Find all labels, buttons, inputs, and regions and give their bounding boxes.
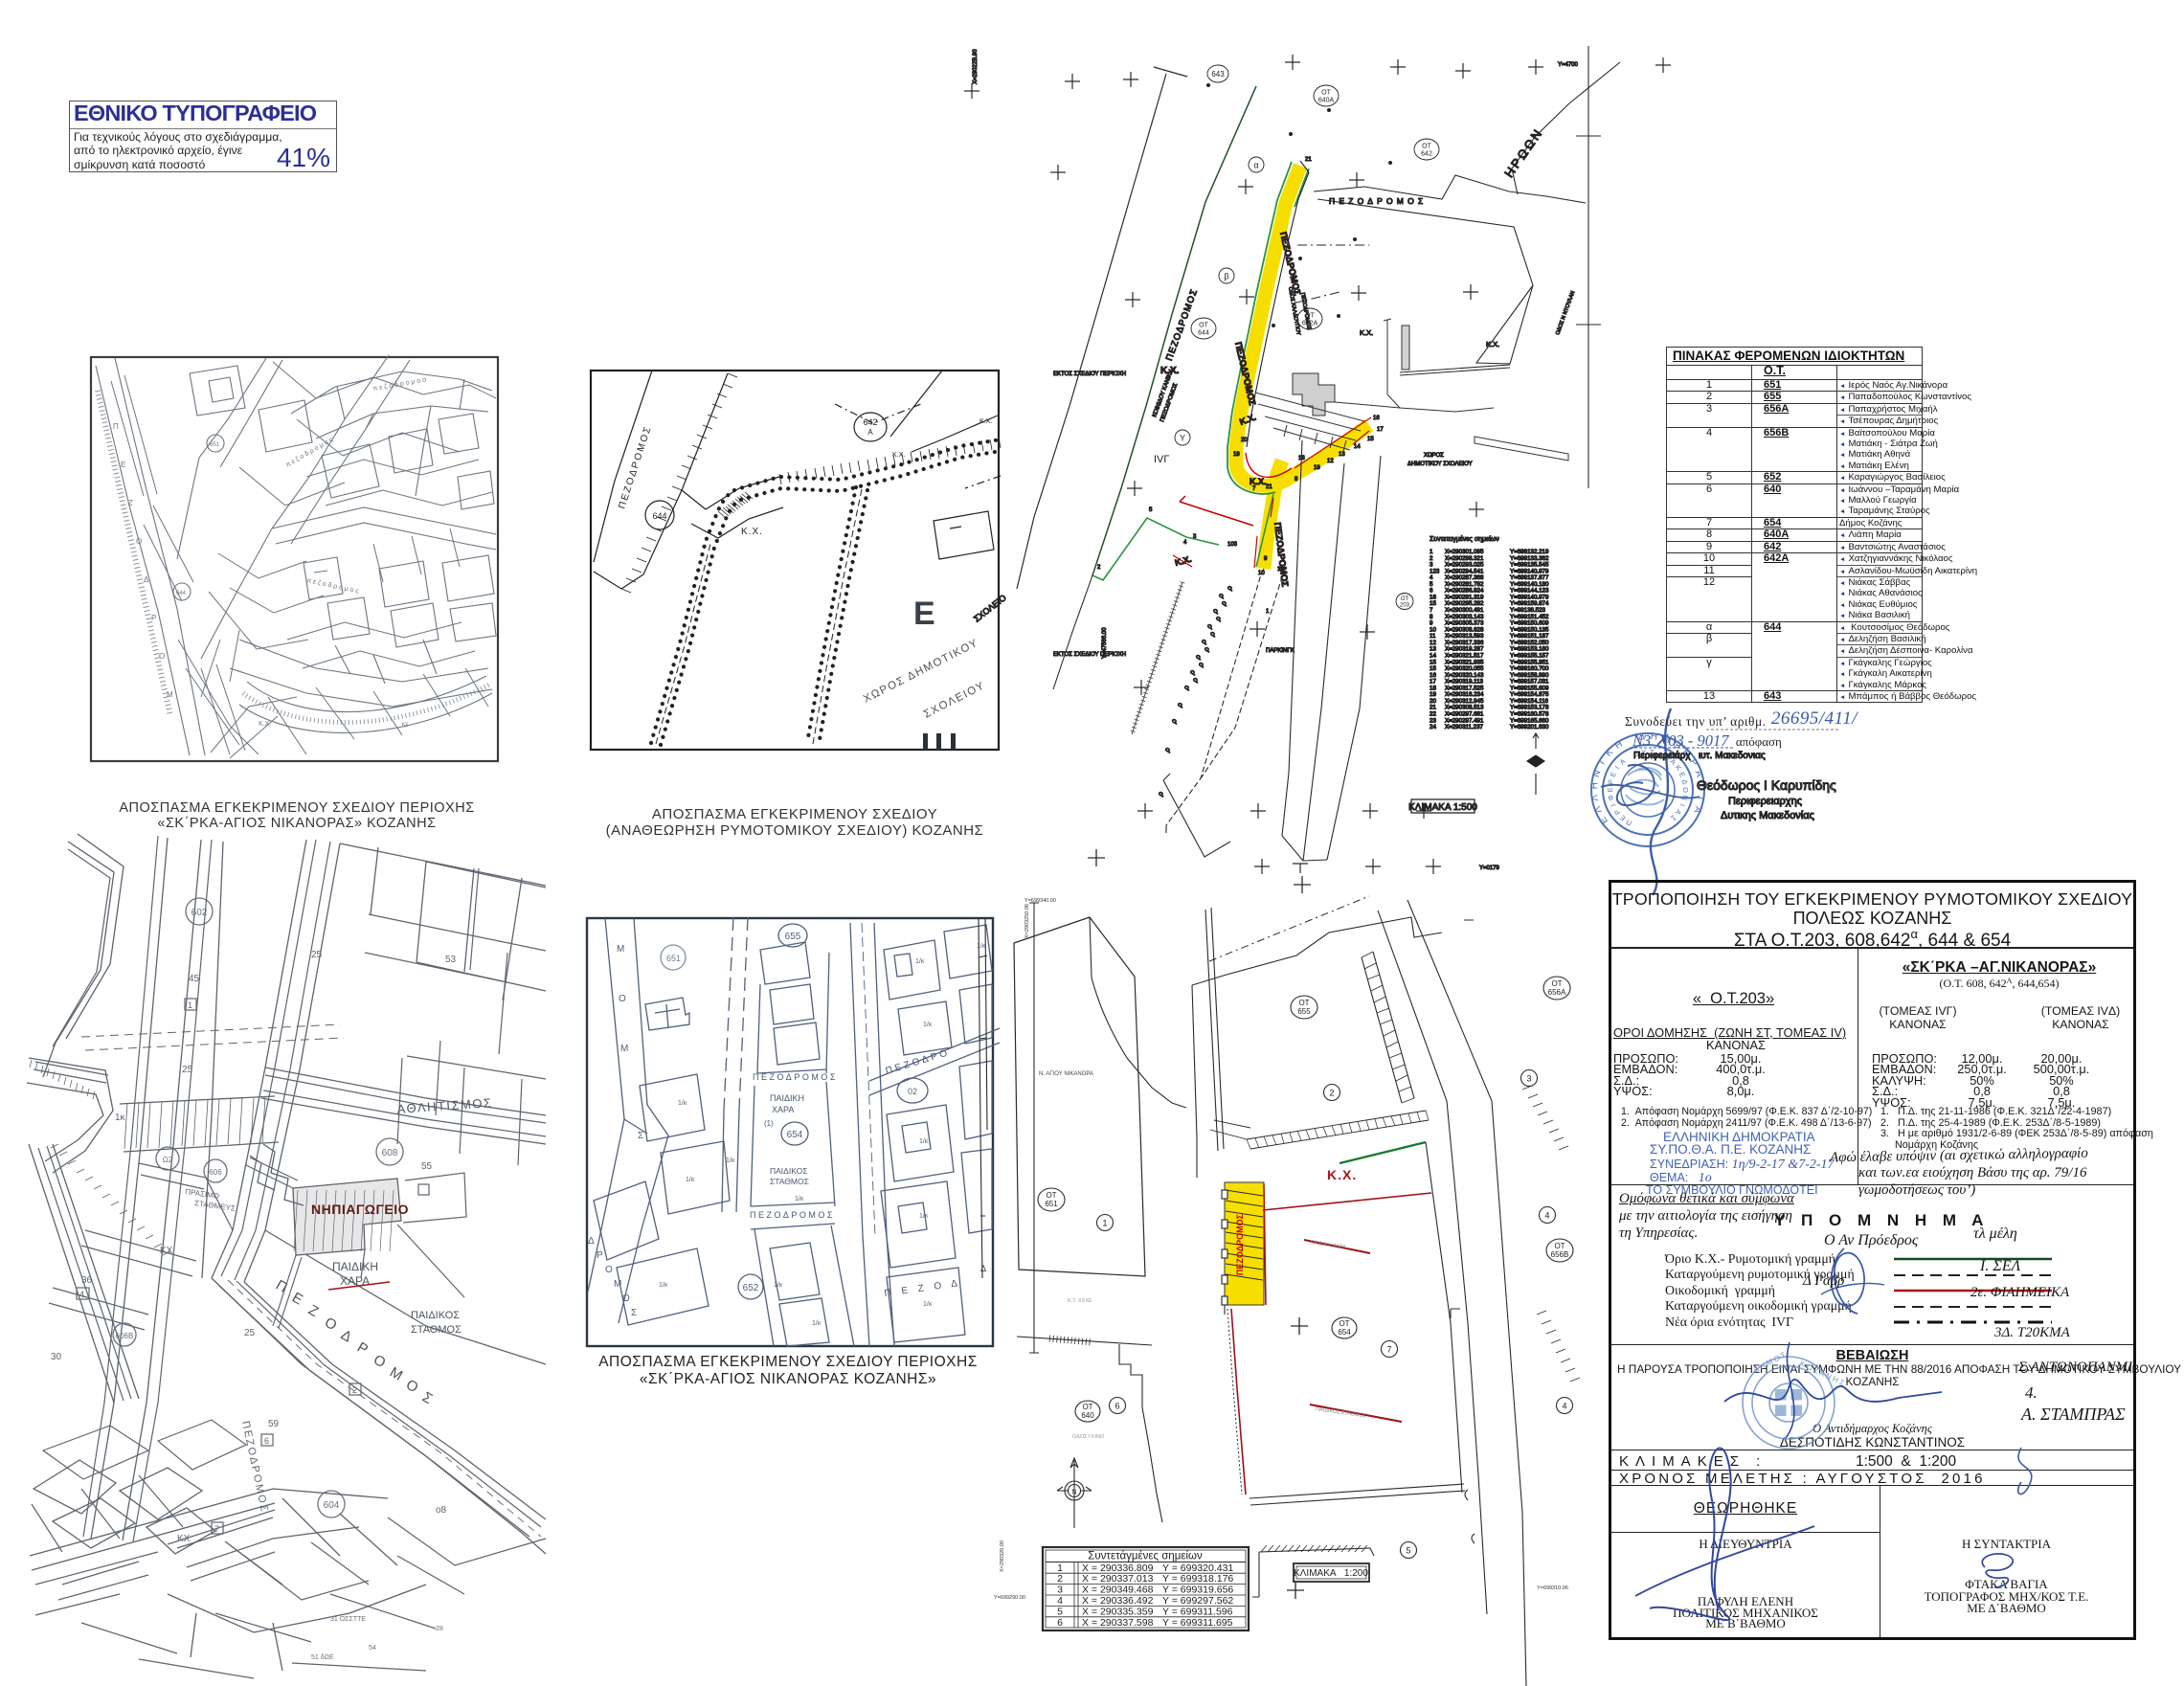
svg-text:Y = 699297.562: Y = 699297.562 — [1162, 1595, 1233, 1607]
svg-text:ρ: ρ — [1199, 638, 1208, 645]
svg-text:Δυτικης Μακεδονίας: Δυτικης Μακεδονίας — [1721, 810, 1814, 821]
svg-text:ΟΤ: ΟΤ — [1046, 1191, 1056, 1200]
svg-text:ρ: ρ — [1162, 746, 1172, 753]
svg-text:15: 15 — [1367, 437, 1374, 442]
svg-text:ρ: ρ — [1182, 684, 1191, 691]
svg-text:Μ: Μ — [617, 944, 624, 955]
svg-text:Y = 699311.695: Y = 699311.695 — [1162, 1617, 1233, 1629]
svg-text:Δ: Δ — [144, 575, 149, 584]
svg-text:19: 19 — [1314, 465, 1320, 471]
svg-text:1κ: 1κ — [115, 1113, 126, 1123]
svg-text:1/κ: 1/κ — [977, 943, 986, 950]
svg-text:ρ: ρ — [1190, 676, 1200, 684]
svg-text:Ω2: Ω2 — [163, 1156, 173, 1164]
svg-text:Δ: Δ — [980, 1264, 986, 1273]
svg-text:4: 4 — [1544, 1211, 1549, 1221]
svg-text:655: 655 — [1297, 1007, 1311, 1016]
svg-text:640Α: 640Α — [1318, 98, 1335, 104]
svg-text:Φ: Φ — [1606, 794, 1615, 801]
svg-text:ΟΤ: ΟΤ — [1554, 1242, 1565, 1250]
svg-text:Ρ: Ρ — [354, 1339, 371, 1359]
svg-text:Α: Α — [867, 428, 873, 437]
svg-text:ΠΕΖΟΔΡΟΜΟΣ: ΠΕΖΟΔΡΟΜΟΣ — [617, 424, 654, 510]
svg-text:Ι: Ι — [1609, 802, 1617, 808]
svg-text:18: 18 — [1298, 456, 1305, 461]
svg-text:Y = 699320.431: Y = 699320.431 — [1162, 1562, 1233, 1574]
svg-text:Θεόδωρος Ι Καρυπίδης: Θεόδωρος Ι Καρυπίδης — [1697, 777, 1836, 793]
svg-text:Ι: Ι — [1597, 759, 1608, 767]
svg-text:ΚΛΙΜΑΚΑ 1:500: ΚΛΙΜΑΚΑ 1:500 — [1408, 802, 1477, 813]
svg-text:654: 654 — [787, 1130, 803, 1140]
svg-text:Π: Π — [113, 422, 119, 431]
svg-text:ΔΗΜΟΤΙΚΟΥ ΣΧΟΛΕΙΟΥ: ΔΗΜΟΤΙΚΟΥ ΣΧΟΛΕΙΟΥ — [1407, 461, 1473, 467]
svg-text:Ε: Ε — [1609, 771, 1618, 778]
svg-text:Δ: Δ — [338, 1327, 354, 1346]
svg-text:1/κ: 1/κ — [923, 1022, 933, 1028]
svg-text:Α: Α — [1674, 807, 1683, 816]
svg-text:19: 19 — [1233, 452, 1240, 458]
svg-text:ΣΤΑΘΜΕΥΣ: ΣΤΑΘΜΕΥΣ — [194, 1199, 236, 1213]
svg-text:17: 17 — [1377, 427, 1384, 433]
svg-text:Ρ: Ρ — [597, 1250, 603, 1261]
svg-text:Ο: Ο — [136, 537, 142, 546]
svg-text:608: 608 — [382, 1148, 398, 1158]
svg-text:ρ: ρ — [1156, 790, 1165, 798]
svg-text:ρ: ρ — [1187, 668, 1197, 676]
svg-text:3: 3 — [1057, 1585, 1063, 1596]
svg-text:ρ: ρ — [1175, 701, 1184, 708]
svg-text:1/κ: 1/κ — [678, 1100, 687, 1107]
svg-text:Y = 699319.656: Y = 699319.656 — [1162, 1585, 1233, 1596]
svg-text:ΟΤ: ΟΤ — [1401, 596, 1409, 602]
svg-text:ΟΤ: ΟΤ — [1199, 323, 1208, 329]
svg-text:59: 59 — [268, 1419, 280, 1429]
svg-text:ΗΡΩΩΝ: ΗΡΩΩΝ — [1501, 125, 1545, 180]
svg-text:642Α: 642Α — [1302, 321, 1318, 327]
svg-text:ΚΛΙΜΑΚΑ 1:200: ΚΛΙΜΑΚΑ 1:200 — [1294, 1568, 1368, 1579]
svg-text:ρ: ρ — [1213, 615, 1223, 622]
svg-text:31 ΟΣΣΤΤΕ: 31 ΟΣΣΤΤΕ — [330, 1616, 366, 1623]
svg-text:11: 11 — [1277, 567, 1284, 573]
svg-text:ΠΕΖΟΔΡΟΜΟΣ: ΠΕΖΟΔΡΟΜΟΣ — [1272, 522, 1290, 588]
svg-text:Υ=699310.96: Υ=699310.96 — [1537, 1585, 1568, 1591]
svg-text:51 δΩΕ: 51 δΩΕ — [311, 1654, 334, 1661]
svg-text:ΠΑΙΔΙΚΗ: ΠΑΙΔΙΚΗ — [770, 1093, 804, 1103]
svg-text:1/κ: 1/κ — [919, 1138, 929, 1145]
svg-text:Ο: Ο — [1681, 787, 1690, 793]
svg-text:642: 642 — [863, 417, 877, 427]
svg-text:Χ=290320.00: Χ=290320.00 — [1000, 1540, 1005, 1572]
svg-text:ρ: ρ — [1169, 717, 1179, 725]
svg-text:25: 25 — [311, 950, 323, 960]
svg-text:Σ: Σ — [1668, 813, 1677, 822]
svg-text:1: 1 — [188, 1000, 192, 1010]
svg-text:1: 1 — [1057, 1562, 1063, 1574]
svg-text:6: 6 — [1057, 1617, 1063, 1629]
svg-text:Κ: Κ — [1674, 763, 1683, 772]
svg-text:Κ.Χ.: Κ.Χ. — [741, 527, 763, 537]
svg-text:ΕΚΤΟΣ ΣΧΕΔΙΟΥ ΠΕΡΙΟΧΗ: ΕΚΤΟΣ ΣΧΕΔΙΟΥ ΠΕΡΙΟΧΗ — [1053, 371, 1126, 377]
svg-text:644: 644 — [176, 591, 187, 596]
svg-text:1/κ: 1/κ — [919, 1213, 929, 1220]
svg-text:3: 3 — [1526, 1074, 1531, 1084]
svg-text:604: 604 — [324, 1500, 340, 1511]
svg-text:Ε: Ε — [1598, 815, 1610, 826]
svg-text:1/κ: 1/κ — [795, 1196, 804, 1203]
svg-text:X = 290337.598: X = 290337.598 — [1082, 1617, 1154, 1629]
svg-text:1: 1 — [1266, 609, 1270, 615]
svg-text:1/κ: 1/κ — [659, 1282, 668, 1289]
svg-text:ΠΕΖΟΔΡΟΜΟΣ: ΠΕΖΟΔΡΟΜΟΣ — [750, 1210, 835, 1220]
svg-text:Κ.Χ.: Κ.Χ. — [1327, 1167, 1357, 1182]
svg-text:606: 606 — [209, 1168, 222, 1177]
svg-text:Η: Η — [1589, 782, 1600, 790]
svg-text:ΕΚΤΟΣ ΣΧΕΔΙΟΥ ΠΕΡΙΟΧΗ: ΕΚΤΟΣ ΣΧΕΔΙΟΥ ΠΕΡΙΟΧΗ — [1053, 652, 1126, 658]
svg-text:X = 290335.359: X = 290335.359 — [1082, 1606, 1154, 1617]
svg-text:Ε: Ε — [1677, 771, 1687, 778]
svg-text:Y = 699311.596: Y = 699311.596 — [1162, 1606, 1233, 1617]
svg-text:Ρ: Ρ — [151, 614, 156, 622]
svg-text:Ο: Ο — [403, 1377, 421, 1397]
svg-text:655: 655 — [785, 932, 801, 942]
svg-text:2: 2 — [1057, 1573, 1063, 1585]
svg-text:4: 4 — [1183, 540, 1187, 546]
svg-text:ΟΤ: ΟΤ — [1339, 1319, 1349, 1328]
svg-text:ΟΤ: ΟΤ — [1551, 979, 1562, 988]
svg-text:4: 4 — [1562, 1402, 1566, 1411]
svg-text:Υ=4700: Υ=4700 — [1558, 62, 1579, 68]
svg-text:5: 5 — [1057, 1606, 1063, 1617]
svg-text:ΠΕΖΟΔΡΟΜΟΣ: ΠΕΖΟΔΡΟΜΟΣ — [753, 1072, 838, 1082]
svg-text:Μ: Μ — [620, 1044, 628, 1054]
svg-text:ΧΑΡΑ: ΧΑΡΑ — [772, 1105, 794, 1114]
svg-text:1/κ: 1/κ — [726, 1158, 735, 1164]
svg-text:Ο: Ο — [371, 1352, 389, 1372]
svg-text:651: 651 — [210, 442, 220, 448]
svg-text:ΠΑΡΚΙΝΓΚ: ΠΑΡΚΙΝΓΚ — [1266, 648, 1295, 654]
svg-text:Σ: Σ — [631, 1308, 637, 1318]
svg-text:55: 55 — [421, 1161, 433, 1172]
svg-text:X = 290336.492: X = 290336.492 — [1082, 1595, 1154, 1607]
svg-text:ΠΑΙΔΙΚΗ: ΠΑΙΔΙΚΗ — [332, 1260, 378, 1273]
svg-text:5: 5 — [1149, 507, 1153, 513]
svg-text:Δ: Δ — [1680, 778, 1690, 785]
svg-text:ΟΔΟΣ Ν ΝΤΟΥΛΑΝ: ΟΔΟΣ Ν ΝΤΟΥΛΑΝ — [1555, 290, 1576, 335]
svg-text:651: 651 — [666, 954, 681, 963]
svg-text:Δ: Δ — [588, 1236, 595, 1247]
svg-text:ΠΑΙΔΙΚΟΣ: ΠΑΙΔΙΚΟΣ — [770, 1166, 807, 1176]
svg-text:Ν: Ν — [1071, 1490, 1076, 1496]
svg-text:103: 103 — [1227, 542, 1238, 548]
svg-text:54: 54 — [369, 1645, 376, 1652]
svg-text:Συντετάγμένες σημείων: Συντετάγμένες σημείων — [1088, 1551, 1203, 1562]
svg-text:28: 28 — [436, 1626, 443, 1632]
svg-text:656Α: 656Α — [1548, 988, 1566, 997]
svg-text:Συντεταγμένες σημείων: Συντεταγμένες σημείων — [1430, 535, 1499, 543]
svg-text:Ε: Ε — [289, 1290, 305, 1309]
svg-text:Κ.Τ. ΧΧΧΕ: Κ.Τ. ΧΧΧΕ — [1068, 1298, 1092, 1304]
svg-text:21: 21 — [1305, 157, 1312, 163]
svg-text:Ο: Ο — [159, 652, 165, 661]
svg-text:ρ: ρ — [1207, 630, 1217, 638]
svg-text:12: 12 — [1327, 459, 1334, 464]
svg-text:1/κ: 1/κ — [686, 1177, 695, 1183]
svg-text:45: 45 — [189, 974, 200, 984]
svg-text:10: 10 — [1258, 571, 1265, 576]
svg-text:ΠΕΖΟΔΡΟ: ΠΕΖΟΔΡΟ — [885, 1047, 952, 1077]
svg-text:16: 16 — [1373, 416, 1380, 421]
svg-text:Ο: Ο — [322, 1315, 340, 1335]
svg-text:2: 2 — [1329, 1089, 1334, 1098]
svg-text:ρ: ρ — [1210, 607, 1220, 615]
svg-text:Μ: Μ — [387, 1364, 405, 1384]
svg-text:ΟΤ: ΟΤ — [1305, 313, 1315, 320]
svg-text:Σ: Σ — [419, 1389, 436, 1407]
svg-text:Μ: Μ — [167, 690, 173, 699]
svg-text:ΟΔΟΣ ΓΚΙΝΟ: ΟΔΟΣ ΓΚΙΝΟ — [1072, 1434, 1105, 1440]
svg-text:5: 5 — [1406, 1546, 1410, 1556]
svg-text:656Β: 656Β — [1551, 1250, 1569, 1259]
svg-text:ρ: ρ — [1216, 592, 1226, 599]
svg-text:(1): (1) — [764, 1119, 774, 1128]
svg-text:Ι: Ι — [1678, 802, 1687, 808]
svg-text:X = 290337.013: X = 290337.013 — [1082, 1573, 1154, 1585]
svg-text:ρ: ρ — [1202, 645, 1211, 653]
svg-text:Κ Ο Ζ Α Ν Η Σ: Κ Ο Ζ Α Ν Η Σ — [1798, 1360, 1846, 1388]
svg-text:β: β — [1224, 272, 1228, 281]
svg-text:κχ: κχ — [402, 722, 409, 728]
svg-text:Y = 699318.176: Y = 699318.176 — [1162, 1573, 1233, 1585]
svg-text:ΟΤ: ΟΤ — [1422, 144, 1431, 150]
svg-text:14: 14 — [1354, 444, 1361, 450]
svg-text:4: 4 — [1057, 1595, 1063, 1607]
svg-text:X=290311.237: X=290311.237 — [1445, 724, 1484, 731]
svg-text:7: 7 — [1386, 1345, 1391, 1355]
svg-text:644: 644 — [652, 511, 666, 521]
svg-text:ΧΩΡΟΣ: ΧΩΡΟΣ — [1424, 453, 1444, 459]
svg-text:Ε: Ε — [121, 461, 125, 469]
svg-text:203: 203 — [1400, 603, 1410, 609]
svg-text:ο8: ο8 — [436, 1505, 447, 1516]
svg-text:ΣΤΑΘΜΟΣ: ΣΤΑΘΜΟΣ — [411, 1324, 462, 1336]
svg-text:4: 4 — [79, 1290, 84, 1299]
svg-text:1/κ: 1/κ — [774, 1282, 783, 1289]
svg-text:1/κ: 1/κ — [915, 958, 925, 965]
svg-text:654: 654 — [1338, 1328, 1351, 1337]
svg-text:Κ.Χ.: Κ.Χ. — [1360, 328, 1373, 337]
svg-text:Ζ: Ζ — [128, 499, 133, 507]
svg-text:606Β: 606Β — [116, 1332, 134, 1340]
svg-text:642: 642 — [1421, 151, 1432, 158]
svg-text:ΟΤ: ΟΤ — [1298, 999, 1309, 1007]
svg-text:Y=699201.630: Y=699201.630 — [1510, 724, 1549, 731]
svg-text:20: 20 — [1241, 438, 1248, 443]
svg-text:13: 13 — [1339, 452, 1345, 458]
svg-text:X = 290349.468: X = 290349.468 — [1082, 1585, 1154, 1596]
svg-text:π ε ζ ο δ ρ ο μ ο ς: π ε ζ ο δ ρ ο μ ο ς — [306, 577, 360, 596]
svg-text:1/κ: 1/κ — [812, 1320, 822, 1327]
svg-text:ΟΤ: ΟΤ — [1082, 1403, 1092, 1411]
svg-text:Κ.Χ.: Κ.Χ. — [259, 721, 271, 728]
svg-text:Χ=2903250.06: Χ=2903250.06 — [1024, 904, 1030, 938]
svg-text:ρ: ρ — [1196, 661, 1205, 668]
svg-text:02: 02 — [908, 1087, 917, 1096]
svg-text:π ε ζ ο δ ρ ο μ ο σ: π ε ζ ο δ ρ ο μ ο σ — [372, 376, 427, 393]
svg-text:Ρ: Ρ — [1612, 807, 1622, 816]
svg-text:Υ=699290.00: Υ=699290.00 — [994, 1595, 1025, 1601]
svg-text:ΠΕΖΟΔΡΟΜΟΣ: ΠΕΖΟΔΡΟΜΟΣ — [1329, 196, 1427, 206]
svg-text:Κ.Χ.: Κ.Χ. — [892, 452, 905, 459]
svg-text:Περιφερειαρχης: Περιφερειαρχης — [1728, 796, 1802, 807]
svg-text:Ζ: Ζ — [305, 1302, 321, 1320]
svg-text:ΠΑΙΔΙΚΟΣ ΣΤΑΘΜΟΣ: ΠΑΙΔΙΚΟΣ ΣΤΑΘΜΟΣ — [1316, 1406, 1367, 1419]
svg-text:2: 2 — [1097, 565, 1101, 571]
svg-text:Ι: Ι — [1613, 764, 1622, 771]
svg-text:640: 640 — [1081, 1411, 1094, 1420]
svg-text:Ε: Ε — [913, 596, 935, 632]
svg-text:ρ: ρ — [1219, 599, 1228, 607]
svg-text:ρ: ρ — [1205, 622, 1214, 630]
svg-text:24: 24 — [1430, 724, 1436, 731]
svg-text:25: 25 — [244, 1328, 256, 1338]
svg-text:643: 643 — [1211, 70, 1225, 79]
svg-text:Ε: Ε — [1606, 787, 1614, 792]
svg-text:ΠΑΙΔΙΚΟΣ: ΠΑΙΔΙΚΟΣ — [411, 1310, 460, 1321]
svg-text:ΣΤΑΘΜΟΣ: ΣΤΑΘΜΟΣ — [770, 1177, 809, 1186]
svg-text:ΠΕΖΟΔΡΟΜΟΣ: ΠΕΖΟΔΡΟΜΟΣ — [1235, 1213, 1245, 1275]
svg-text:ΟΤ: ΟΤ — [1321, 90, 1331, 97]
svg-text:ρ: ρ — [1225, 584, 1234, 592]
svg-text:53: 53 — [445, 955, 457, 965]
svg-text:Y=47566.00: Y=47566.00 — [1102, 627, 1108, 659]
svg-text:652: 652 — [743, 1283, 759, 1293]
svg-text:6: 6 — [1115, 1402, 1119, 1411]
svg-text:Υ=699340.00: Υ=699340.00 — [1024, 898, 1056, 904]
svg-text:ΠΑΙΔΙΚΗ ΧΑΡΑ: ΠΑΙΔΙΚΗ ΧΑΡΑ — [1310, 1240, 1347, 1250]
svg-text:Ο: Ο — [605, 1265, 613, 1275]
svg-text:30: 30 — [51, 1352, 62, 1362]
svg-text:644: 644 — [1198, 330, 1209, 337]
svg-text:ρ: ρ — [1193, 653, 1203, 661]
svg-text:Ο: Ο — [619, 994, 626, 1004]
svg-text:21: 21 — [1266, 484, 1272, 490]
svg-text:ΝΗΠΙΑΓΩΓΕΙΟ: ΝΗΠΙΑΓΩΓΕΙΟ — [311, 1202, 409, 1217]
svg-text:ΣΧΟΛΕΙΟ: ΣΧΟΛΕΙΟ — [972, 593, 1008, 623]
svg-text:Κ.Χ.: Κ.Χ. — [1486, 340, 1499, 348]
svg-text:IVΓ: IVΓ — [1154, 454, 1169, 465]
svg-text:Κ.Χ.: Κ.Χ. — [1250, 477, 1267, 486]
svg-text:651: 651 — [1045, 1200, 1058, 1208]
svg-text:Σ: Σ — [638, 1131, 643, 1141]
svg-text:Π Ε Ζ Ο Δ: Π Ε Ζ Ο Δ — [884, 1278, 962, 1299]
svg-text:α: α — [1253, 161, 1258, 170]
svg-text:1: 1 — [1102, 1219, 1107, 1228]
svg-text:π ε ζ ο δ ρ ο μ ο ς: π ε ζ ο δ ρ ο μ ο ς — [285, 437, 335, 469]
svg-text:6: 6 — [264, 1436, 269, 1446]
svg-text:Υ: Υ — [1180, 434, 1185, 443]
svg-text:X=29022B.90: X=29022B.90 — [973, 49, 979, 84]
svg-text:X = 290336.809: X = 290336.809 — [1082, 1562, 1154, 1574]
svg-text:1/κ: 1/κ — [923, 1301, 933, 1308]
svg-text:Ν. ΑΓΙΟΥ ΝΙΚΑΝΟΡΑ: Ν. ΑΓΙΟΥ ΝΙΚΑΝΟΡΑ — [1039, 1071, 1093, 1077]
